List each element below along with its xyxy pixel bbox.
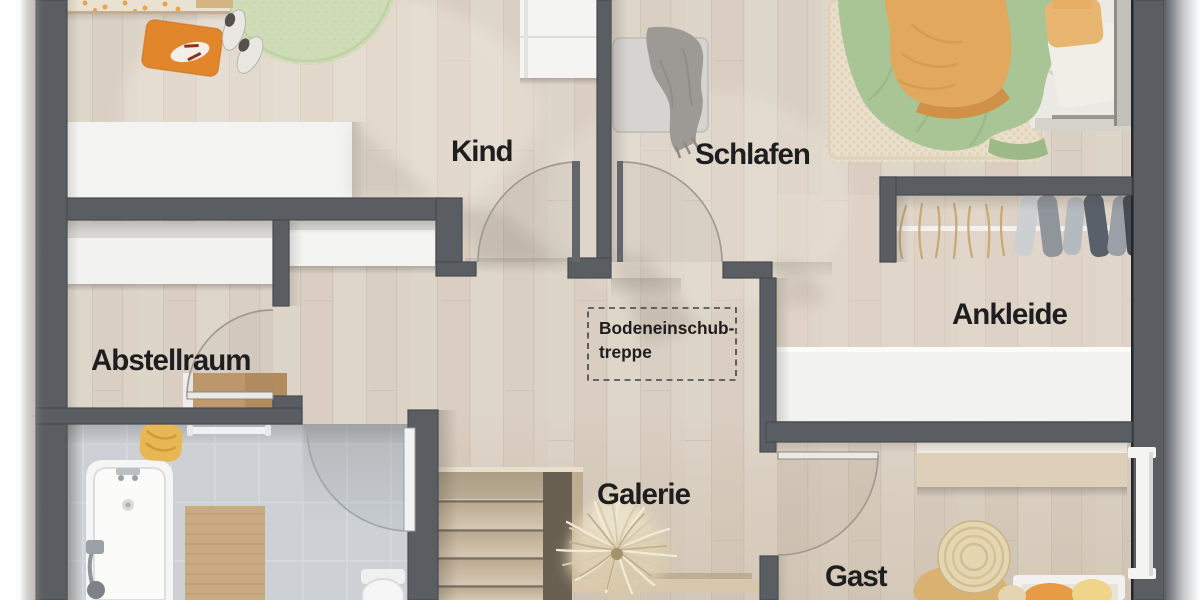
- svg-text:Gast: Gast: [825, 560, 888, 593]
- svg-text:Galerie: Galerie: [597, 478, 691, 511]
- svg-text:Ankleide: Ankleide: [952, 298, 1068, 331]
- svg-text:Bodeneinschub-: Bodeneinschub-: [599, 318, 735, 338]
- svg-text:treppe: treppe: [599, 342, 652, 362]
- svg-text:Kind: Kind: [451, 135, 513, 168]
- svg-text:Abstellraum: Abstellraum: [91, 344, 251, 377]
- svg-text:Schlafen: Schlafen: [695, 138, 810, 171]
